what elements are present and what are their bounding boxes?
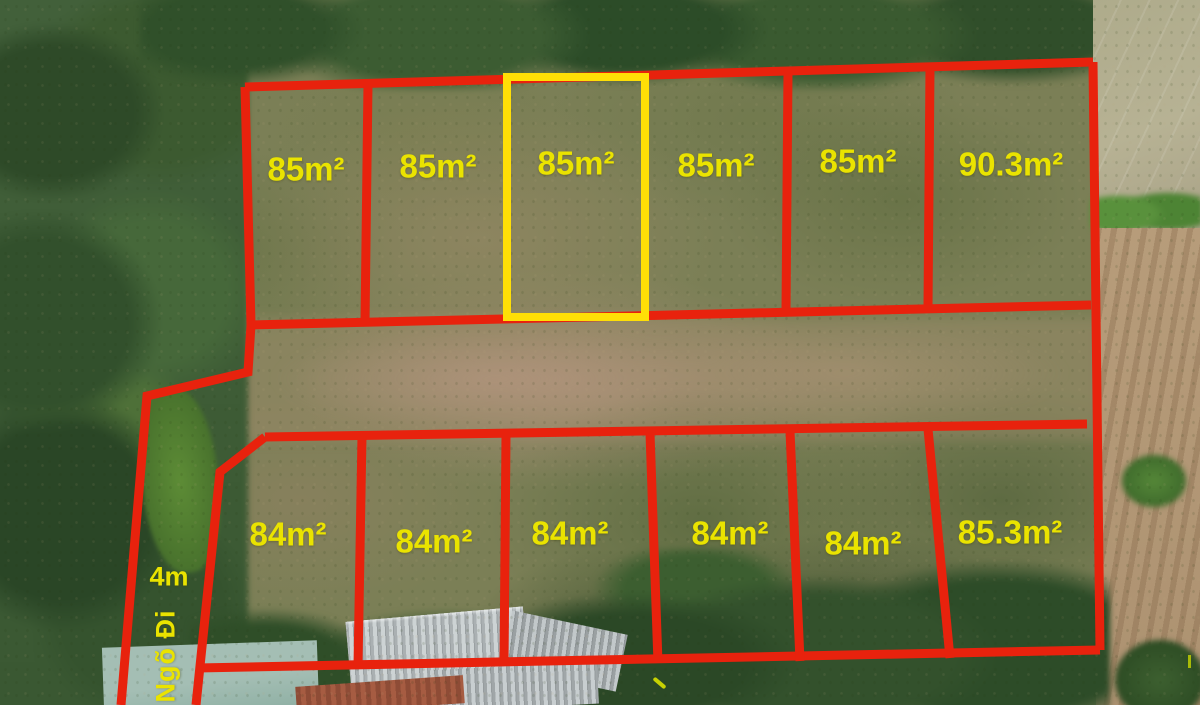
plot-label-bottom-6: 85.3m² xyxy=(958,516,1063,549)
yellow-tick-mark xyxy=(1188,655,1191,668)
alley-width-label: 4m xyxy=(149,562,188,593)
plot-label-top-5: 85m² xyxy=(819,145,896,178)
plot-label-bottom-1: 84m² xyxy=(249,518,326,551)
plot-label-top-1: 85m² xyxy=(267,153,344,186)
plot-label-bottom-4: 84m² xyxy=(691,517,768,550)
plot-label-bottom-2: 84m² xyxy=(395,525,472,558)
plot-label-top-6: 90.3m² xyxy=(959,148,1064,181)
plot-label-top-3: 85m² xyxy=(537,147,614,180)
plot-boundaries-overlay xyxy=(0,0,1200,705)
plot-label-bottom-5: 84m² xyxy=(824,527,901,560)
highlighted-plot-outline xyxy=(507,77,645,317)
plot-label-top-4: 85m² xyxy=(677,149,754,182)
plot-label-top-2: 85m² xyxy=(399,150,476,183)
plot-label-bottom-3: 84m² xyxy=(531,517,608,550)
aerial-photo: 85m² 85m² 85m² 85m² 85m² 90.3m² 84m² 84m… xyxy=(0,0,1200,705)
alley-name-label: Ngõ Đi xyxy=(151,610,182,703)
